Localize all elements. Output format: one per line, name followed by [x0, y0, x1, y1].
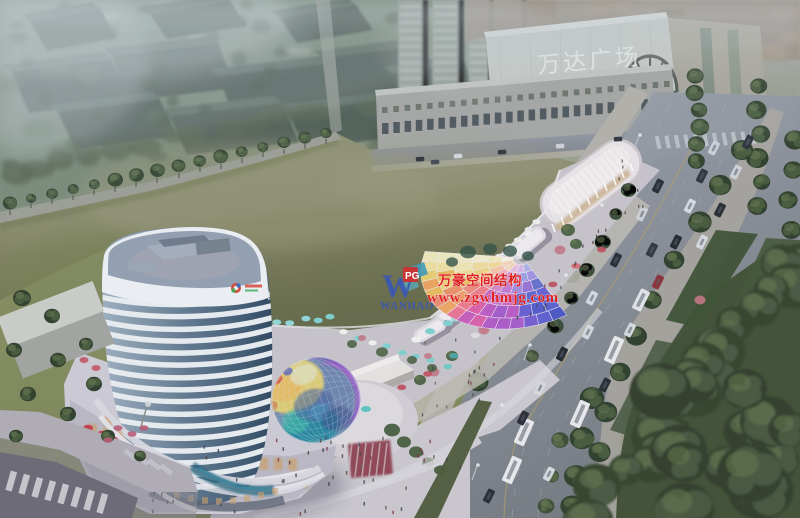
svg-text:万豪空间结构: 万豪空间结构	[437, 272, 522, 288]
svg-text:PG: PG	[405, 271, 420, 282]
svg-text:www.zgwhmjg.com: www.zgwhmjg.com	[427, 290, 559, 306]
